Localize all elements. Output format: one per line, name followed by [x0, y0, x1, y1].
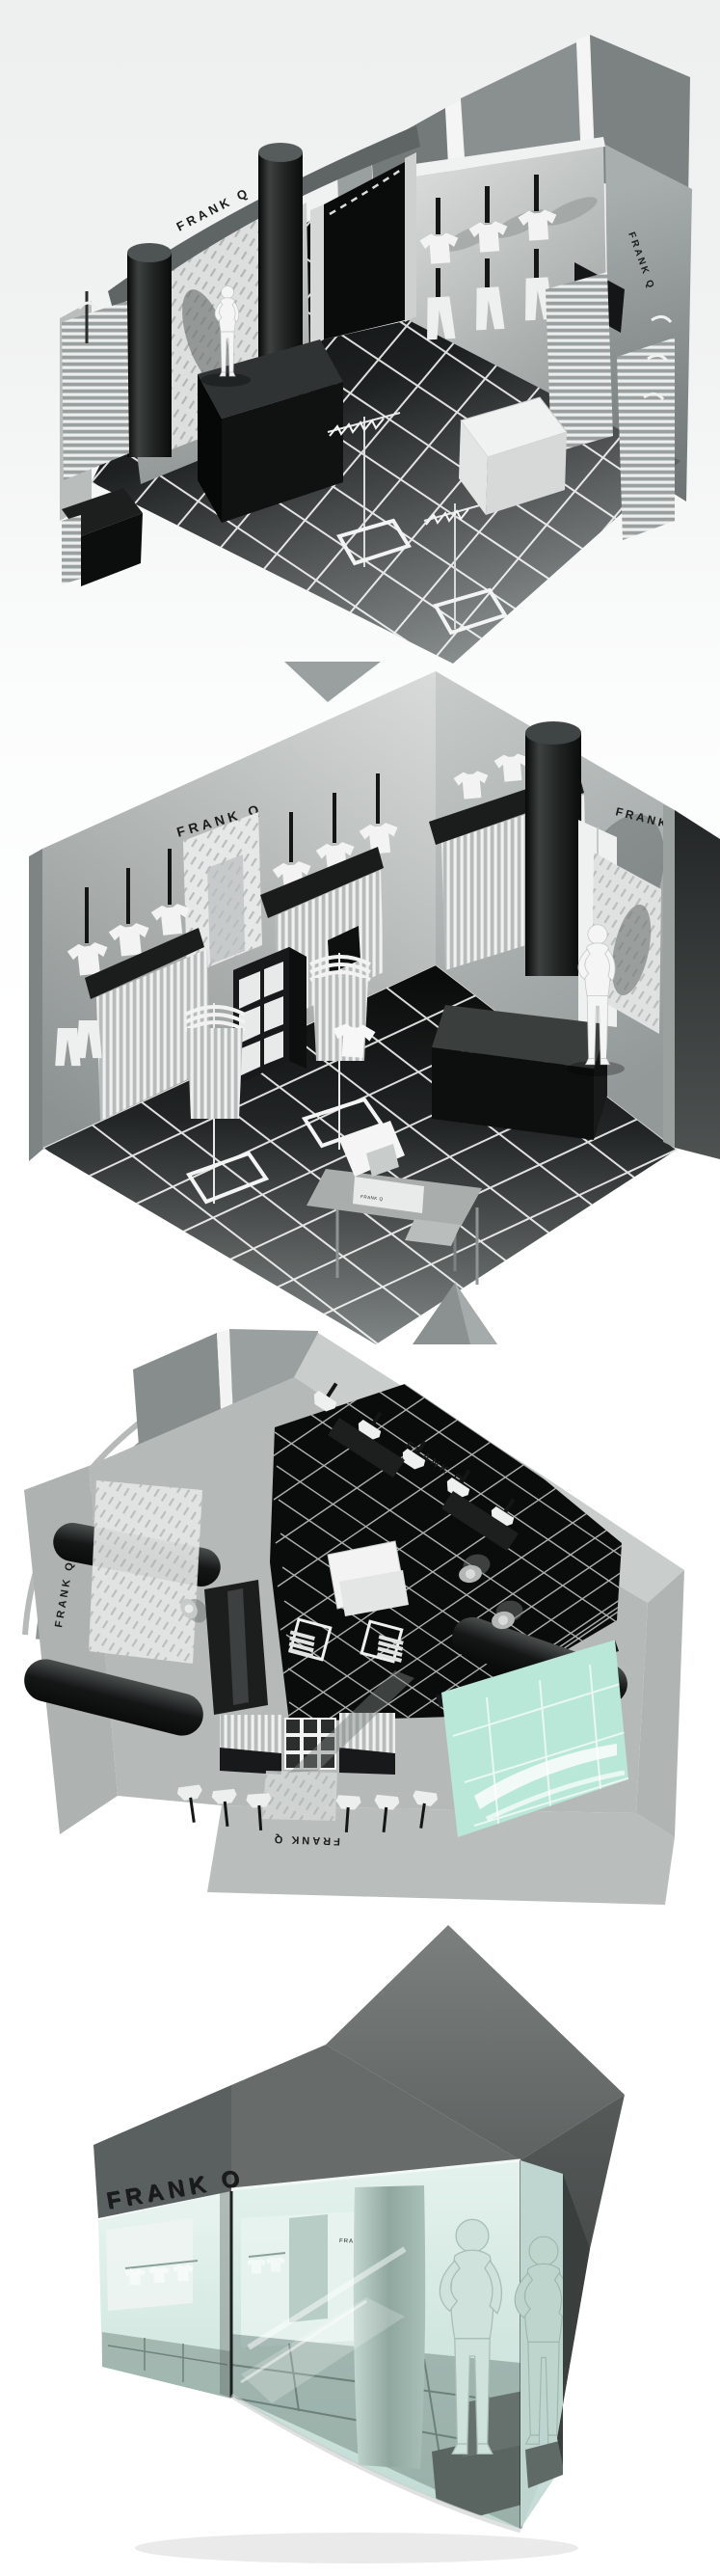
edge-column	[663, 804, 675, 1148]
poster	[89, 1480, 202, 1664]
column	[127, 253, 172, 457]
dark-edge-wall	[675, 810, 720, 1159]
door-edge	[220, 2191, 231, 2398]
interior-doorway	[289, 2214, 328, 2322]
ground-shadow	[135, 2533, 578, 2563]
store-renderings: FRANK Q	[0, 0, 720, 2576]
left-shop-window	[98, 2191, 231, 2399]
folded-stock-rack	[62, 301, 129, 480]
lower-wall-band	[207, 1805, 675, 1905]
interior-column	[525, 721, 581, 976]
brand-sign: FRANK Q	[272, 1833, 340, 1847]
render-sheet: FRANK Q	[0, 0, 720, 2576]
wall-edge	[29, 849, 42, 1161]
folded-stock-rack	[617, 338, 675, 540]
